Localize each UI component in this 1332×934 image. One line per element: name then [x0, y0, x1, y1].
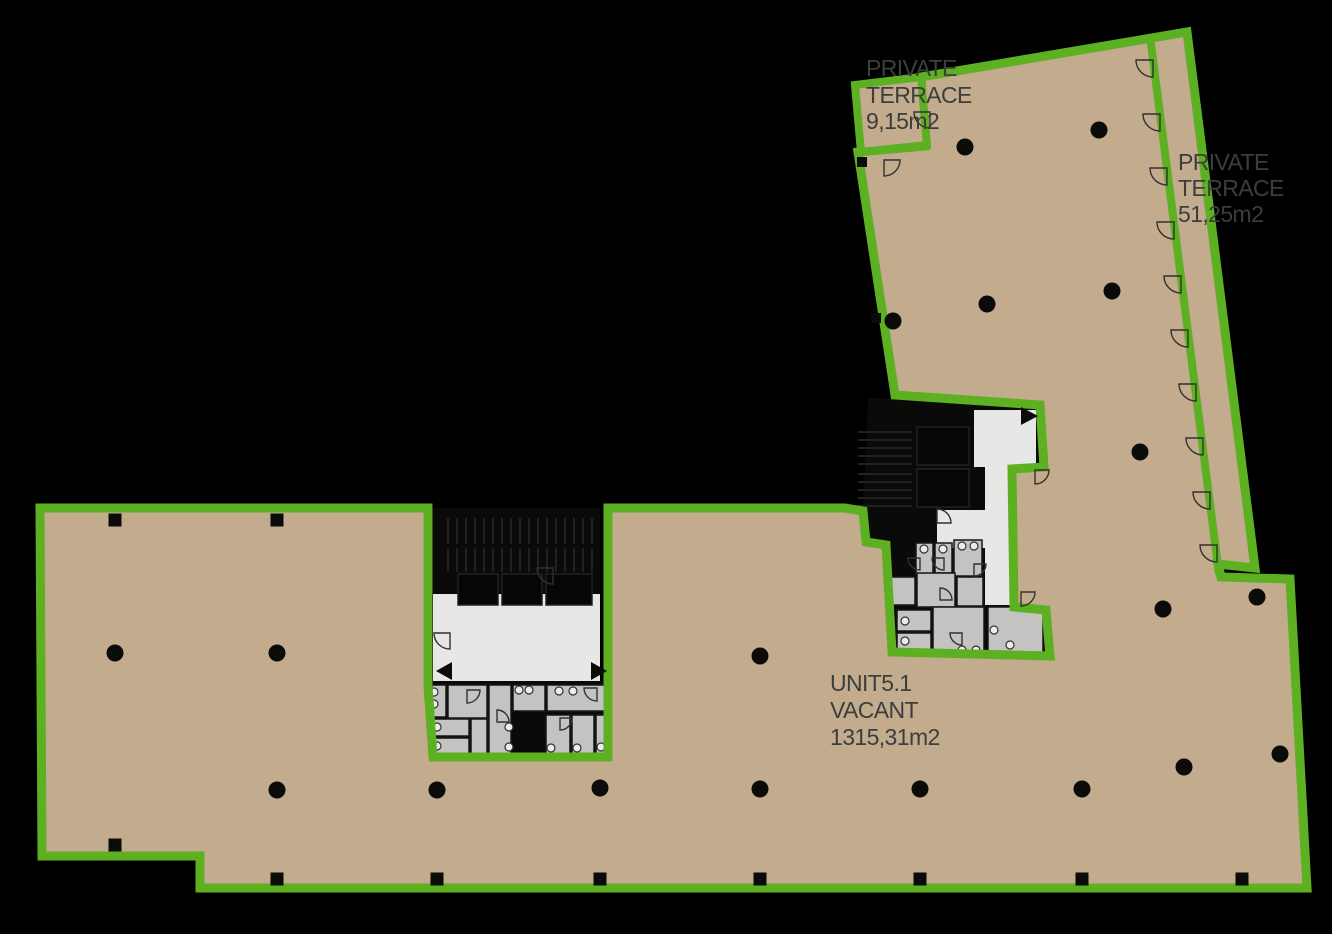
- sanitary-fixture: [901, 637, 909, 645]
- column-dot: [1249, 589, 1266, 606]
- shaft: [521, 713, 545, 757]
- column-dot: [752, 781, 769, 798]
- column-dot: [1132, 444, 1149, 461]
- washroom-cell: [471, 719, 487, 755]
- column-square: [271, 514, 284, 527]
- column-dot: [1272, 746, 1289, 763]
- column-square: [109, 839, 122, 852]
- sanitary-fixture: [573, 744, 581, 752]
- washroom-cell: [933, 607, 984, 652]
- column-dot: [1074, 781, 1091, 798]
- sanitary-fixture: [1006, 641, 1014, 649]
- sanitary-fixture: [939, 545, 947, 553]
- column-square: [594, 873, 607, 886]
- column-dot: [885, 313, 902, 330]
- sanitary-fixture: [990, 626, 998, 634]
- column-dot: [1176, 759, 1193, 776]
- floor-plan-canvas: PRIVATE TERRACE 9,15m2 PRIVATE TERRACE 5…: [0, 0, 1332, 934]
- sanitary-fixture: [569, 687, 577, 695]
- column-dot: [269, 645, 286, 662]
- sanitary-fixture: [505, 743, 513, 751]
- elevator-box: [917, 469, 969, 507]
- elevator-box: [458, 574, 498, 605]
- column-dot: [1155, 601, 1172, 618]
- column-square: [1236, 873, 1249, 886]
- column-square: [914, 873, 927, 886]
- column-dot: [429, 782, 446, 799]
- column-dot: [912, 781, 929, 798]
- column-square: [871, 313, 881, 323]
- column-square: [109, 514, 122, 527]
- column-square: [1076, 873, 1089, 886]
- column-dot: [957, 139, 974, 156]
- sanitary-fixture: [958, 542, 966, 550]
- unit-5-1-floor-area[interactable]: [40, 32, 1307, 888]
- sanitary-fixture: [970, 542, 978, 550]
- sanitary-fixture: [547, 744, 555, 752]
- corridor-lower: [433, 594, 600, 686]
- column-dot: [269, 782, 286, 799]
- column-dot: [1091, 122, 1108, 139]
- column-square: [754, 873, 767, 886]
- sanitary-fixture: [920, 545, 928, 553]
- column-dot: [592, 780, 609, 797]
- washroom-cell: [957, 577, 983, 606]
- column-dot: [752, 648, 769, 665]
- column-square: [431, 873, 444, 886]
- elevator-box: [917, 427, 969, 465]
- terrace-large-label: PRIVATE TERRACE 51,25m2: [1178, 149, 1290, 227]
- column-dot: [1104, 283, 1121, 300]
- column-dot: [979, 296, 996, 313]
- sanitary-fixture: [515, 686, 523, 694]
- sanitary-fixture: [505, 723, 513, 731]
- sanitary-fixture: [555, 687, 563, 695]
- sanitary-fixture: [525, 686, 533, 694]
- washroom-cell: [917, 573, 955, 607]
- column-dot: [107, 645, 124, 662]
- column-square: [857, 157, 867, 167]
- column-square: [271, 873, 284, 886]
- sanitary-fixture: [901, 617, 909, 625]
- washroom-cell: [890, 577, 915, 605]
- elevator-box: [502, 574, 542, 605]
